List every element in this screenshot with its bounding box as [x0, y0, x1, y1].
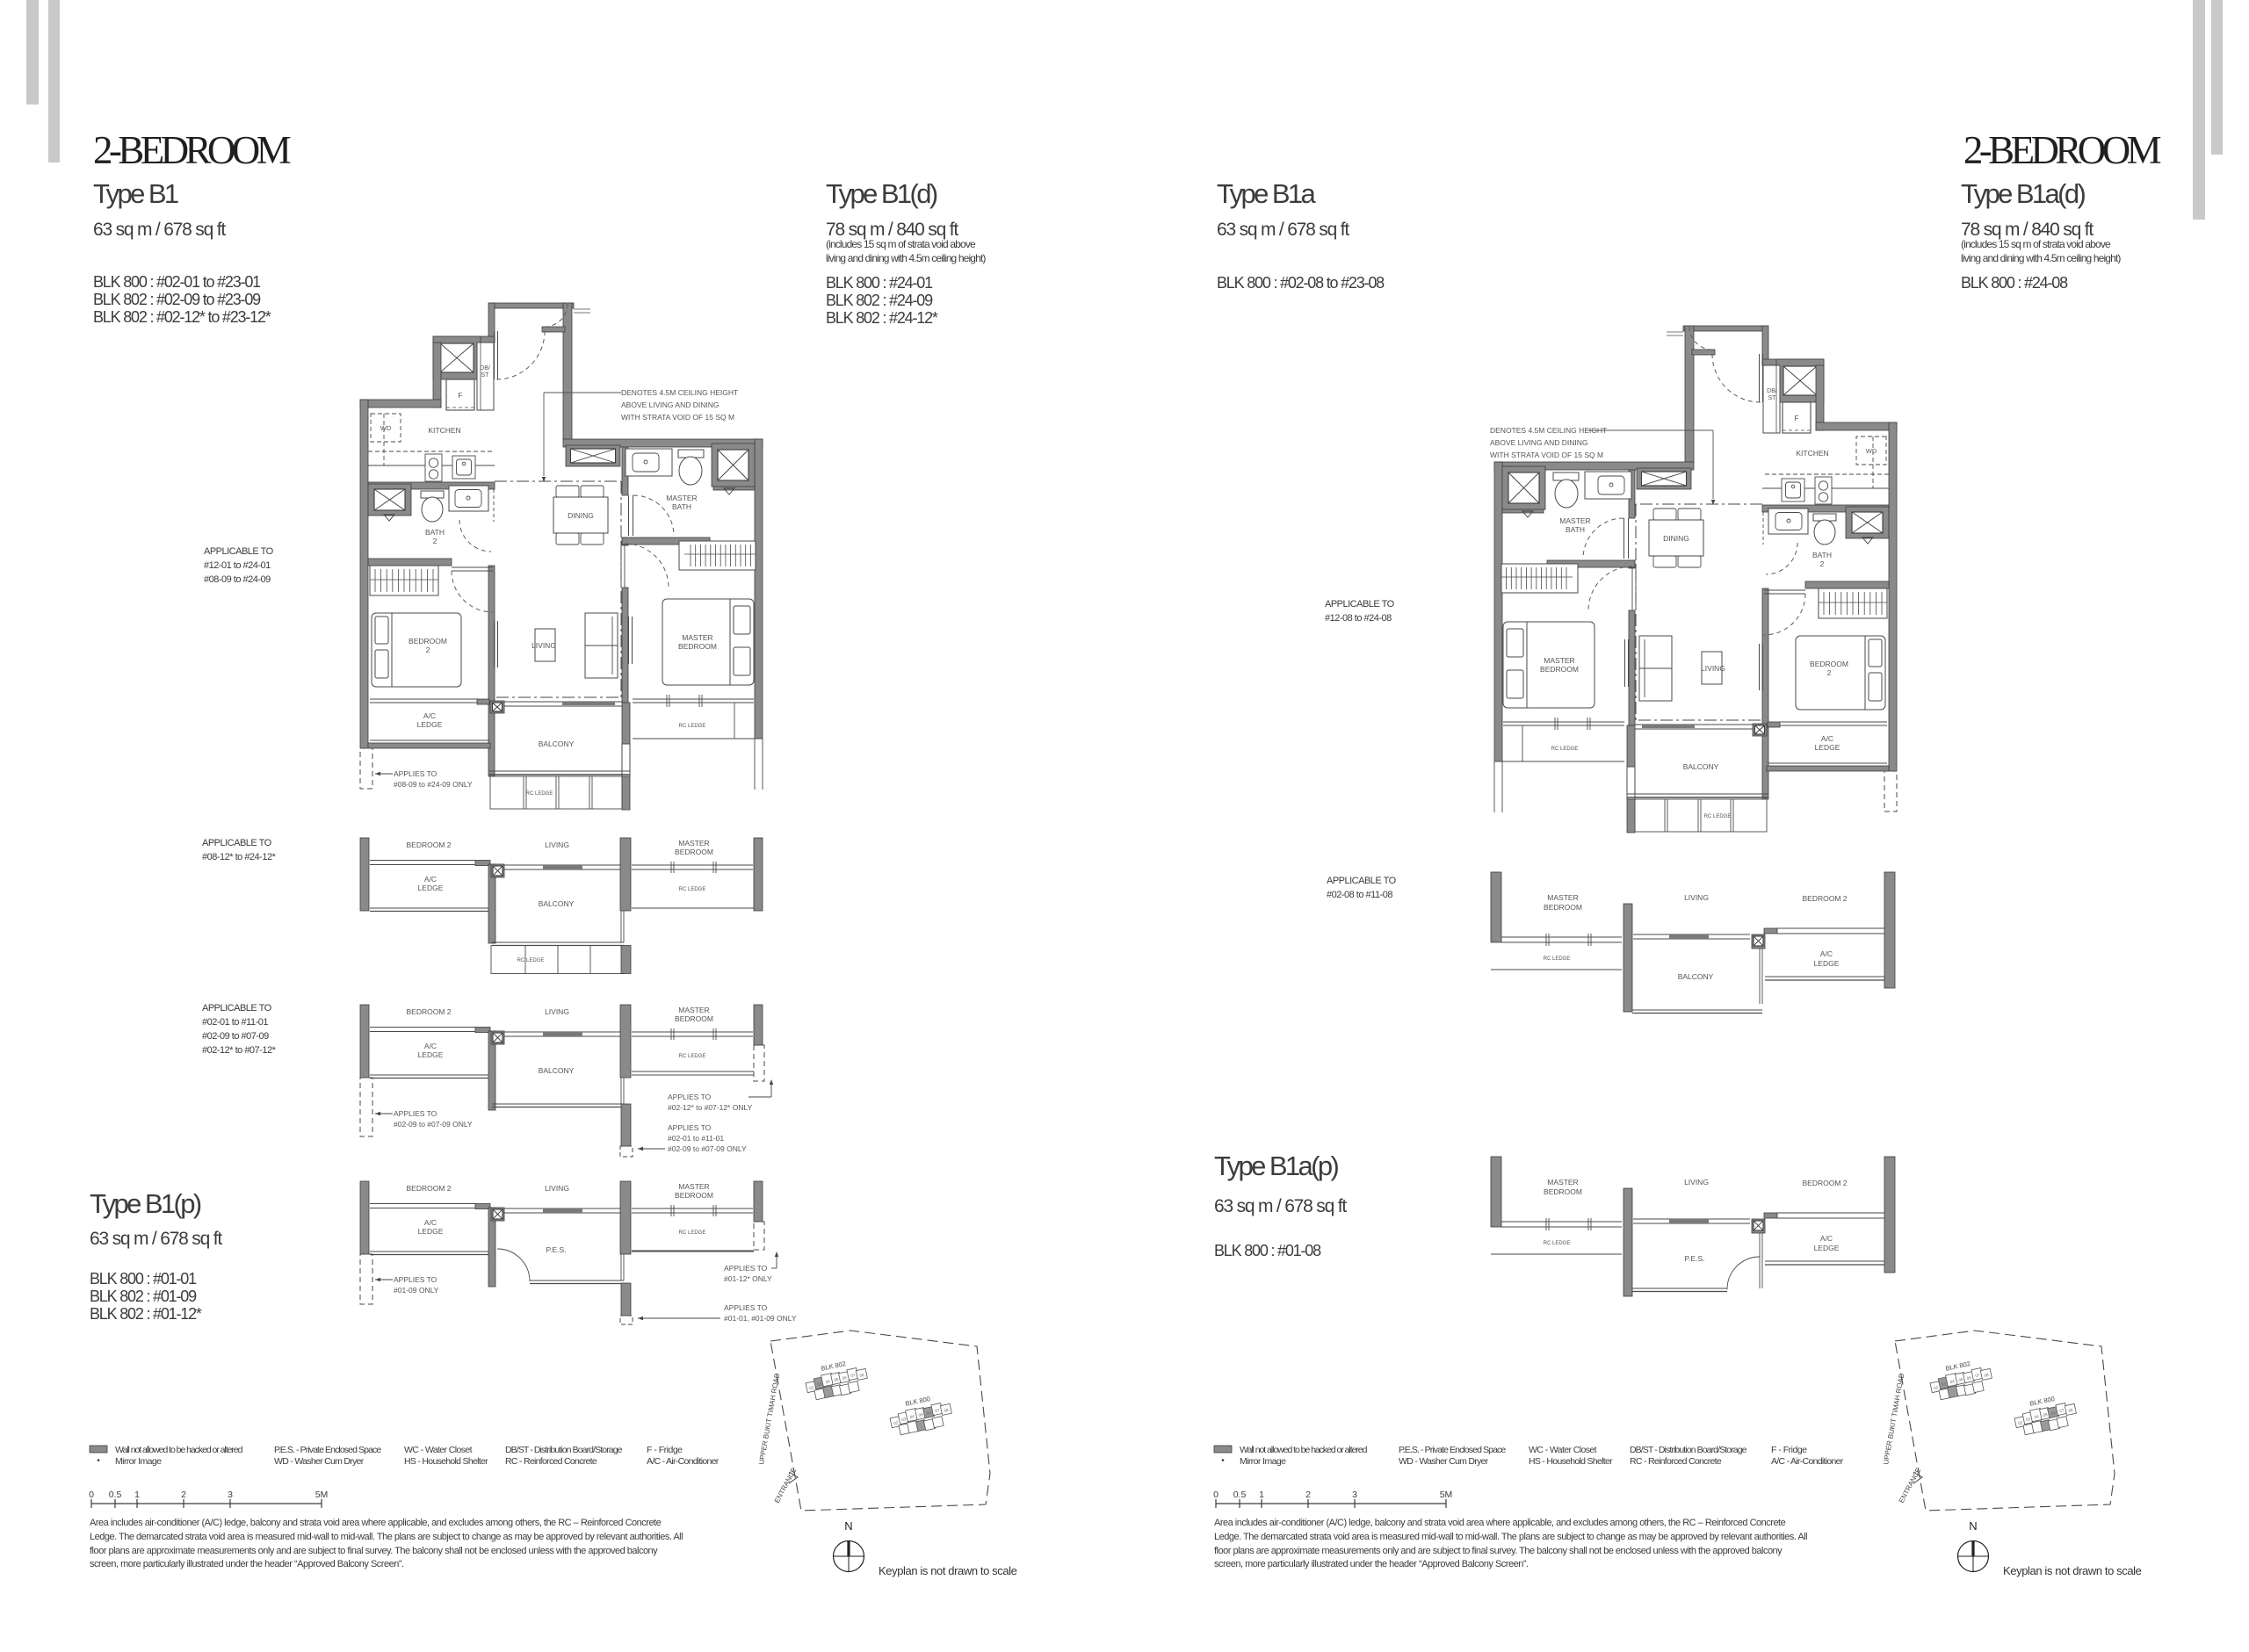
svg-text:BEDROOM: BEDROOM — [1810, 660, 1848, 668]
svg-text:A/C: A/C — [424, 1218, 437, 1227]
svg-text:2: 2 — [181, 1490, 186, 1500]
svg-text:WITH STRATA VOID OF 15 SQ M: WITH STRATA VOID OF 15 SQ M — [621, 413, 734, 422]
svg-text:F - Fridge: F - Fridge — [647, 1445, 683, 1455]
svg-text:#08-09 to #24-09: #08-09 to #24-09 — [204, 574, 271, 585]
svg-text:P.E.S. - Private Enclosed Spac: P.E.S. - Private Enclosed Space — [1399, 1445, 1506, 1455]
svg-text:RC LEDGE: RC LEDGE — [679, 724, 706, 729]
svg-text:#02-09 to #07-09 ONLY: #02-09 to #07-09 ONLY — [668, 1144, 747, 1153]
svg-text:A/C - Air-Conditioner: A/C - Air-Conditioner — [1771, 1456, 1844, 1467]
svg-text:BALCONY: BALCONY — [539, 899, 575, 908]
svg-text:LEDGE: LEDGE — [1814, 959, 1840, 968]
svg-text:APPLIES TO: APPLIES TO — [394, 1109, 438, 1118]
svg-text:2: 2 — [426, 646, 430, 654]
svg-text:LEDGE: LEDGE — [417, 720, 443, 729]
svg-text:ABOVE LIVING AND DINING: ABOVE LIVING AND DINING — [1490, 438, 1587, 447]
svg-text:ST: ST — [481, 372, 490, 379]
svg-text:3: 3 — [228, 1490, 233, 1500]
svg-text:BALCONY: BALCONY — [539, 1066, 575, 1075]
svg-text:living and dining with 4.5m ce: living and dining with 4.5m ceiling heig… — [826, 252, 986, 264]
svg-text:Type B1a(d): Type B1a(d) — [1961, 178, 2086, 209]
svg-text:0.5: 0.5 — [109, 1490, 122, 1500]
svg-text:#02-12* to #07-12* ONLY: #02-12* to #07-12* ONLY — [668, 1103, 753, 1112]
svg-text:KITCHEN: KITCHEN — [428, 426, 460, 435]
svg-text:Type B1a(p): Type B1a(p) — [1214, 1151, 1339, 1181]
svg-text:BLK 802 : #24-09: BLK 802 : #24-09 — [826, 292, 933, 309]
svg-text:63 sq m / 678 sq ft: 63 sq m / 678 sq ft — [93, 220, 226, 240]
svg-text:MASTER: MASTER — [666, 494, 697, 502]
svg-text:P.E.S. - Private Enclosed Spac: P.E.S. - Private Enclosed Space — [274, 1445, 381, 1455]
svg-text:Type B1(d): Type B1(d) — [826, 178, 937, 209]
svg-text:LEDGE: LEDGE — [418, 884, 444, 892]
svg-text:BLK 800 : #01-01: BLK 800 : #01-01 — [90, 1270, 197, 1288]
svg-text:BLK 802 : #24-12*: BLK 802 : #24-12* — [826, 309, 938, 327]
svg-text:DB/ST - Distribution Board/Sto: DB/ST - Distribution Board/Storage — [505, 1445, 623, 1455]
svg-text:RC LEDGE: RC LEDGE — [1544, 956, 1571, 962]
svg-text:floor plans are approximate me: floor plans are approximate measurements… — [90, 1546, 658, 1556]
svg-text:2: 2 — [433, 537, 438, 545]
svg-text:DB/: DB/ — [480, 365, 490, 372]
svg-text:BEDROOM: BEDROOM — [1544, 903, 1582, 912]
svg-text:BEDROOM 2: BEDROOM 2 — [406, 1184, 451, 1193]
svg-text:HS - Household Shelter: HS - Household Shelter — [1529, 1456, 1613, 1467]
svg-text:2: 2 — [1305, 1490, 1311, 1500]
svg-text:N: N — [1969, 1519, 1977, 1533]
svg-text:MASTER: MASTER — [1547, 893, 1578, 902]
svg-text:APPLICABLE TO: APPLICABLE TO — [204, 546, 274, 557]
svg-text:APPLICABLE TO: APPLICABLE TO — [202, 1003, 272, 1014]
svg-text:#02-09 to #07-09 ONLY: #02-09 to #07-09 ONLY — [394, 1120, 473, 1129]
svg-text:BEDROOM: BEDROOM — [675, 1191, 713, 1200]
svg-text:RC LEDGE: RC LEDGE — [679, 887, 706, 892]
svg-text:1: 1 — [1259, 1490, 1264, 1500]
svg-text:BALCONY: BALCONY — [1683, 762, 1719, 771]
svg-text:KITCHEN: KITCHEN — [1796, 449, 1828, 458]
svg-text:•: • — [97, 1456, 100, 1466]
svg-text:78 sq m / 840 sq ft: 78 sq m / 840 sq ft — [1961, 220, 2094, 240]
svg-text:LIVING: LIVING — [545, 1007, 569, 1016]
svg-text:#02-01 to #11-01: #02-01 to #11-01 — [202, 1017, 268, 1028]
svg-text:RC - Reinforced Concrete: RC - Reinforced Concrete — [1630, 1456, 1722, 1467]
svg-text:APPLIES TO: APPLIES TO — [724, 1264, 768, 1273]
svg-text:RC - Reinforced Concrete: RC - Reinforced Concrete — [505, 1456, 597, 1467]
svg-text:1: 1 — [134, 1490, 140, 1500]
svg-text:#08-09 to #24-09 ONLY: #08-09 to #24-09 ONLY — [394, 780, 473, 789]
svg-text:screen, more particularly illu: screen, more particularly illustrated un… — [1214, 1559, 1529, 1569]
svg-text:5M: 5M — [315, 1490, 329, 1500]
svg-text:2-BEDROOM: 2-BEDROOM — [1963, 128, 2161, 172]
svg-text:BLK 802 : #02-09 to #23-09: BLK 802 : #02-09 to #23-09 — [93, 291, 261, 308]
svg-text:A/C: A/C — [423, 711, 436, 720]
svg-text:floor plans are approximate me: floor plans are approximate measurements… — [1214, 1546, 1783, 1556]
svg-text:3: 3 — [1352, 1490, 1357, 1500]
svg-text:P.E.S.: P.E.S. — [1685, 1254, 1705, 1263]
svg-text:#01-12* ONLY: #01-12* ONLY — [724, 1274, 772, 1283]
svg-text:LEDGE: LEDGE — [1815, 743, 1840, 752]
svg-text:WD - Washer Cum Dryer: WD - Washer Cum Dryer — [1399, 1456, 1489, 1467]
svg-text:BLK 802 : #01-12*: BLK 802 : #01-12* — [90, 1305, 202, 1323]
svg-text:Wall not allowed to be hacked: Wall not allowed to be hacked or altered — [1240, 1445, 1368, 1455]
svg-text:F: F — [458, 391, 462, 400]
svg-text:BATH: BATH — [1566, 525, 1585, 534]
svg-text:BLK 802 : #01-09: BLK 802 : #01-09 — [90, 1288, 197, 1305]
svg-text:Ledge. The demarcated strata v: Ledge. The demarcated strata void area i… — [90, 1532, 683, 1542]
svg-text:screen, more particularly illu: screen, more particularly illustrated un… — [90, 1559, 404, 1569]
svg-text:Type B1: Type B1 — [93, 178, 178, 209]
svg-text:BLK 800 : #02-01 to #23-01: BLK 800 : #02-01 to #23-01 — [93, 273, 261, 291]
svg-text:0: 0 — [89, 1490, 94, 1500]
svg-text:BEDROOM: BEDROOM — [675, 848, 713, 856]
svg-text:APPLIES TO: APPLIES TO — [394, 769, 438, 778]
svg-text:2: 2 — [1827, 668, 1832, 677]
svg-text:APPLIES TO: APPLIES TO — [668, 1123, 712, 1132]
svg-text:LIVING: LIVING — [1684, 893, 1709, 902]
svg-text:APPLICABLE TO: APPLICABLE TO — [202, 838, 272, 848]
svg-text:BLK 802 : #02-12* to #23-12*: BLK 802 : #02-12* to #23-12* — [93, 308, 271, 326]
svg-text:78 sq m / 840 sq ft: 78 sq m / 840 sq ft — [826, 220, 958, 240]
svg-text:BEDROOM: BEDROOM — [1544, 1187, 1582, 1196]
svg-text:DENOTES 4.5M CEILING HEIGHT: DENOTES 4.5M CEILING HEIGHT — [621, 388, 738, 397]
svg-text:LEDGE: LEDGE — [418, 1050, 444, 1059]
svg-text:LIVING: LIVING — [1701, 664, 1725, 673]
svg-text:#01-09 ONLY: #01-09 ONLY — [394, 1286, 439, 1295]
svg-text:DB/ST - Distribution Board/Sto: DB/ST - Distribution Board/Storage — [1630, 1445, 1747, 1455]
svg-text:WITH STRATA VOID OF 15 SQ M: WITH STRATA VOID OF 15 SQ M — [1490, 451, 1603, 459]
svg-text:Mirror Image: Mirror Image — [1240, 1456, 1286, 1467]
svg-text:Keyplan is not drawn to scale: Keyplan is not drawn to scale — [879, 1564, 1017, 1577]
svg-text:Keyplan is not drawn to scale: Keyplan is not drawn to scale — [2003, 1564, 2142, 1577]
svg-text:LIVING: LIVING — [545, 840, 569, 849]
svg-text:HS - Household Shelter: HS - Household Shelter — [404, 1456, 488, 1467]
svg-text:BEDROOM 2: BEDROOM 2 — [1802, 1179, 1847, 1187]
svg-text:2-BEDROOM: 2-BEDROOM — [93, 128, 291, 172]
svg-text:BALCONY: BALCONY — [1678, 972, 1714, 981]
svg-text:BEDROOM 2: BEDROOM 2 — [1802, 894, 1847, 903]
svg-text:N: N — [844, 1519, 852, 1533]
svg-text:living and dining with 4.5m ce: living and dining with 4.5m ceiling heig… — [1961, 252, 2121, 264]
svg-text:APPLIES TO: APPLIES TO — [394, 1275, 438, 1284]
svg-text:#12-08 to #24-08: #12-08 to #24-08 — [1325, 613, 1392, 624]
svg-text:#02-12* to #07-12*: #02-12* to #07-12* — [202, 1045, 277, 1056]
svg-text:BEDROOM 2: BEDROOM 2 — [406, 840, 451, 849]
svg-text:#01-01, #01-09 ONLY: #01-01, #01-09 ONLY — [724, 1314, 797, 1323]
svg-text:BEDROOM: BEDROOM — [675, 1014, 713, 1023]
svg-text:MASTER: MASTER — [678, 1006, 709, 1014]
svg-text:5M: 5M — [1440, 1490, 1453, 1500]
svg-text:RC LEDGE: RC LEDGE — [517, 958, 545, 963]
svg-text:APPLICABLE TO: APPLICABLE TO — [1327, 876, 1397, 886]
svg-text:LEDGE: LEDGE — [1814, 1244, 1840, 1252]
svg-text:WD: WD — [380, 424, 392, 432]
svg-text:BLK 800 : #01-08: BLK 800 : #01-08 — [1214, 1242, 1321, 1259]
svg-text:WD: WD — [1866, 447, 1877, 455]
svg-text:Wall not allowed to be hacked: Wall not allowed to be hacked or altered — [115, 1445, 243, 1455]
svg-text:BEDROOM: BEDROOM — [678, 642, 717, 651]
svg-text:#02-09 to #07-09: #02-09 to #07-09 — [202, 1031, 269, 1042]
svg-text:BEDROOM 2: BEDROOM 2 — [406, 1007, 451, 1016]
svg-text:RC LEDGE: RC LEDGE — [1551, 747, 1579, 752]
svg-text:DINING: DINING — [568, 511, 594, 520]
svg-text:A/C: A/C — [1820, 949, 1833, 958]
svg-text:63 sq m / 678 sq ft: 63 sq m / 678 sq ft — [1217, 220, 1349, 240]
svg-text:BEDROOM: BEDROOM — [409, 637, 447, 646]
svg-text:Mirror Image: Mirror Image — [115, 1456, 162, 1467]
svg-text:#02-08 to #11-08: #02-08 to #11-08 — [1327, 890, 1392, 900]
svg-text:MASTER: MASTER — [1544, 656, 1574, 665]
svg-text:Area includes air-conditioner: Area includes air-conditioner (A/C) ledg… — [90, 1518, 662, 1528]
svg-text:F: F — [1794, 414, 1798, 422]
svg-text:MASTER: MASTER — [1547, 1178, 1578, 1187]
svg-text:A/C: A/C — [424, 875, 437, 884]
svg-text:RC LEDGE: RC LEDGE — [1544, 1241, 1571, 1246]
svg-text:WC - Water Closet: WC - Water Closet — [404, 1445, 473, 1455]
svg-text:#08-12* to #24-12*: #08-12* to #24-12* — [202, 852, 277, 862]
svg-text:ABOVE LIVING AND DINING: ABOVE LIVING AND DINING — [621, 400, 719, 409]
svg-text:A/C: A/C — [424, 1042, 437, 1050]
svg-text:Ledge. The demarcated strata v: Ledge. The demarcated strata void area i… — [1214, 1532, 1807, 1542]
svg-text:BALCONY: BALCONY — [539, 739, 575, 748]
svg-text:Type B1(p): Type B1(p) — [90, 1188, 201, 1219]
svg-text:#12-01 to #24-01: #12-01 to #24-01 — [204, 560, 271, 571]
svg-text:63 sq m / 678 sq ft: 63 sq m / 678 sq ft — [1214, 1196, 1347, 1216]
svg-text:BEDROOM: BEDROOM — [1540, 665, 1579, 674]
svg-text:MASTER: MASTER — [682, 633, 712, 642]
svg-text:•: • — [1221, 1456, 1225, 1466]
svg-text:BATH: BATH — [425, 528, 445, 537]
svg-text:ST: ST — [1768, 395, 1777, 401]
svg-text:MASTER: MASTER — [678, 839, 709, 848]
svg-text:F - Fridge: F - Fridge — [1771, 1445, 1807, 1455]
svg-text:BLK 800 : #24-08: BLK 800 : #24-08 — [1961, 274, 2068, 292]
svg-text:DINING: DINING — [1663, 534, 1689, 543]
svg-text:2: 2 — [1820, 559, 1825, 568]
svg-text:RC LEDGE: RC LEDGE — [526, 791, 553, 797]
svg-text:DB/: DB/ — [1767, 388, 1777, 394]
svg-text:0.5: 0.5 — [1233, 1490, 1247, 1500]
svg-text:Area includes air-conditioner: Area includes air-conditioner (A/C) ledg… — [1214, 1518, 1786, 1528]
svg-text:MASTER: MASTER — [678, 1182, 709, 1191]
svg-text:RC LEDGE: RC LEDGE — [679, 1230, 706, 1236]
svg-text:0: 0 — [1213, 1490, 1219, 1500]
svg-text:A/C: A/C — [1821, 734, 1833, 743]
svg-text:BATH: BATH — [672, 502, 691, 511]
svg-text:WC - Water Closet: WC - Water Closet — [1529, 1445, 1597, 1455]
svg-text:MASTER: MASTER — [1559, 516, 1590, 525]
svg-text:Type B1a: Type B1a — [1217, 178, 1317, 209]
svg-text:63 sq m / 678 sq ft: 63 sq m / 678 sq ft — [90, 1229, 222, 1249]
svg-text:WD - Washer Cum Dryer: WD - Washer Cum Dryer — [274, 1456, 365, 1467]
svg-text:APPLIES TO: APPLIES TO — [668, 1093, 712, 1101]
svg-text:BLK 800 : #24-01: BLK 800 : #24-01 — [826, 274, 933, 292]
svg-text:#02-01 to #11-01: #02-01 to #11-01 — [668, 1134, 724, 1143]
svg-text:BATH: BATH — [1812, 551, 1832, 559]
svg-text:BLK 800 : #02-08 to #23-08: BLK 800 : #02-08 to #23-08 — [1217, 274, 1385, 292]
svg-text:RC LEDGE: RC LEDGE — [679, 1054, 706, 1059]
svg-text:A/C: A/C — [1820, 1234, 1833, 1243]
svg-text:APPLICABLE TO: APPLICABLE TO — [1325, 599, 1395, 610]
svg-text:RC LEDGE: RC LEDGE — [1704, 814, 1732, 819]
svg-text:P.E.S.: P.E.S. — [546, 1245, 567, 1254]
svg-text:(includes 15 sq m of strata vo: (includes 15 sq m of strata void above — [1961, 238, 2111, 250]
svg-text:APPLIES TO: APPLIES TO — [724, 1303, 768, 1312]
svg-text:A/C - Air-Conditioner: A/C - Air-Conditioner — [647, 1456, 720, 1467]
svg-text:LIVING: LIVING — [1684, 1178, 1709, 1187]
svg-text:LIVING: LIVING — [532, 641, 556, 650]
svg-text:LEDGE: LEDGE — [418, 1227, 444, 1236]
svg-text:(includes 15 sq m of strata vo: (includes 15 sq m of strata void above — [826, 238, 976, 250]
svg-text:LIVING: LIVING — [545, 1184, 569, 1193]
